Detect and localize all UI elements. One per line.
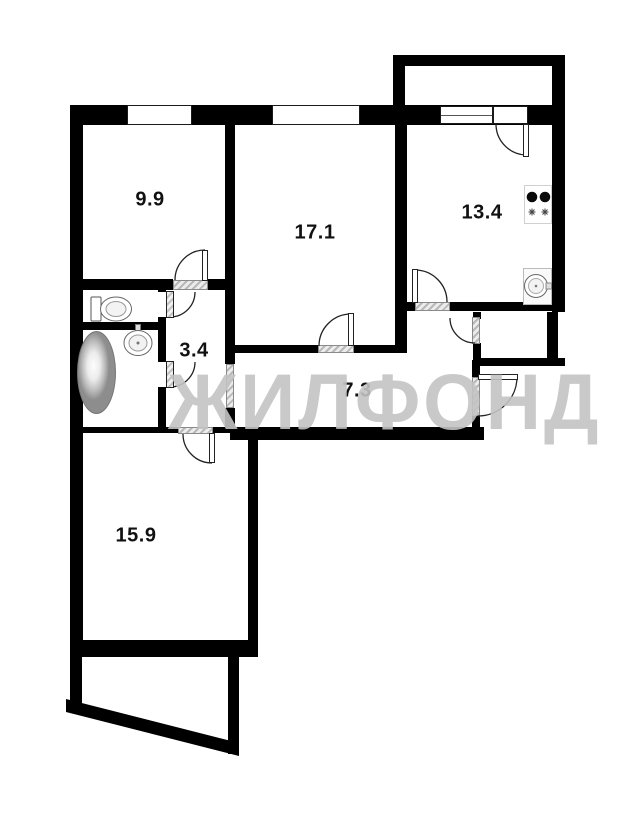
room-area-label-kitchen: 13.4: [462, 202, 503, 225]
wall-balcony2-left: [70, 657, 82, 707]
wall-balcony2-slanted: [66, 699, 239, 756]
wall-right-kitchen: [552, 55, 565, 312]
wall-kitchen-bottom-stub: [407, 302, 415, 311]
wall-bathroom-right: [158, 387, 166, 427]
room-area-label-bedroom: 9.9: [135, 189, 164, 212]
threshold-kitchen-door: [415, 302, 450, 311]
wall-livingroom-bottom-left: [230, 345, 318, 353]
threshold-bedroom-door: [173, 280, 208, 290]
balcony-door-panel: [493, 106, 528, 124]
wall-toilet-right-a: [158, 279, 166, 292]
livingroom-door-arc: [319, 314, 351, 346]
washbasin-icon: [122, 324, 155, 357]
wall-balcony-top: [393, 55, 563, 66]
window-livingroom: [272, 105, 360, 125]
floor-plan: 9.9 17.1 13.4 3.4 7.3 15.9 ЖИЛФОНД: [0, 0, 638, 819]
wall-livingroom-right: [395, 105, 407, 353]
bathtub-icon: [77, 331, 116, 414]
wall-balcony2-right: [228, 657, 239, 754]
bedroom-door-arc: [175, 250, 205, 280]
wall-room159-top-left: [70, 427, 178, 433]
toilet-door-leaf: [166, 291, 174, 318]
toilet-icon: [89, 294, 133, 324]
wall-room159-right: [248, 427, 258, 657]
kitchen-sink-icon: [523, 268, 552, 305]
wall-room159-bottom: [70, 640, 258, 657]
livingroom-door-leaf: [348, 313, 354, 346]
kitchen-door-arc: [415, 270, 447, 302]
window-sill-line: [441, 115, 492, 116]
wall-wetzone-top-right: [208, 279, 235, 290]
room-area-label-room159: 15.9: [116, 525, 157, 548]
room-area-label-livingroom: 17.1: [295, 222, 336, 245]
watermark: ЖИЛФОНД: [168, 362, 601, 441]
window-bedroom: [127, 105, 192, 125]
wall-livingroom-bottom-right: [354, 345, 407, 353]
kitchen-door-leaf: [412, 269, 418, 303]
stove-icon: [524, 185, 552, 224]
wall-spine-upper: [225, 105, 235, 364]
balcony-door-leaf: [523, 124, 529, 157]
window-kitchen: [440, 106, 493, 124]
bedroom-door-leaf: [202, 250, 208, 281]
closet-door-leaf: [472, 317, 480, 344]
threshold-livingroom-door: [318, 345, 354, 353]
balcony-door-arc: [496, 124, 526, 155]
